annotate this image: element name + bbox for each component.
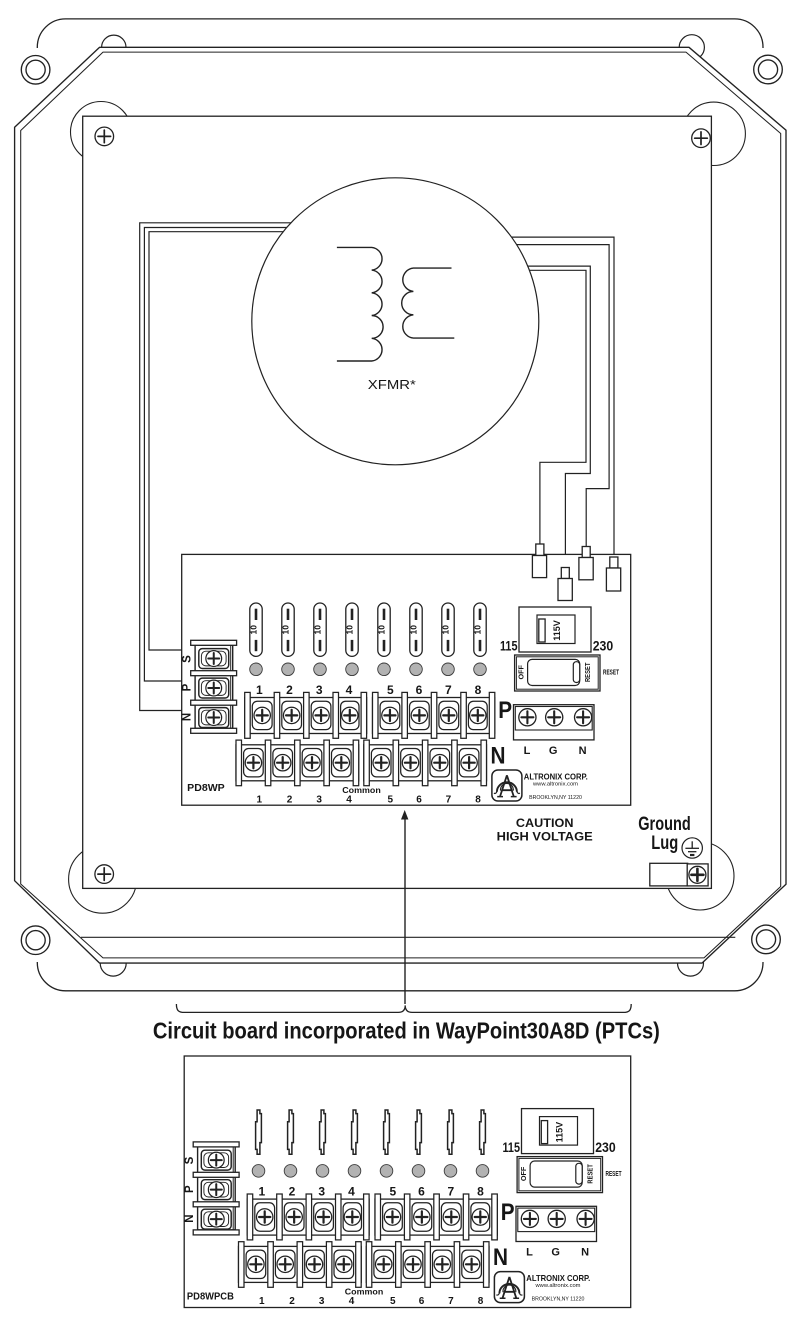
- svg-text:7: 7: [448, 1296, 454, 1307]
- svg-text:10: 10: [377, 625, 387, 635]
- svg-text:1: 1: [256, 683, 263, 697]
- svg-text:2: 2: [289, 1185, 296, 1199]
- svg-text:3: 3: [316, 795, 322, 806]
- svg-text:3: 3: [316, 683, 323, 697]
- svg-text:4: 4: [349, 1296, 355, 1307]
- svg-text:7: 7: [448, 1185, 455, 1199]
- svg-text:115: 115: [500, 639, 518, 654]
- svg-text:7: 7: [446, 795, 452, 806]
- svg-text:Lug: Lug: [651, 832, 678, 854]
- svg-text:N: N: [581, 1247, 589, 1259]
- svg-text:RESET: RESET: [606, 1171, 622, 1178]
- svg-text:115V: 115V: [552, 620, 562, 641]
- svg-text:5: 5: [390, 1296, 396, 1307]
- svg-text:www.altronix.com: www.altronix.com: [536, 1283, 581, 1289]
- svg-text:PD8WPCB: PD8WPCB: [187, 1290, 234, 1302]
- svg-text:HIGH VOLTAGE: HIGH VOLTAGE: [497, 831, 593, 844]
- svg-text:6: 6: [419, 1296, 425, 1307]
- svg-text:2: 2: [289, 1296, 295, 1307]
- svg-text:L: L: [526, 1247, 533, 1259]
- svg-text:OFF: OFF: [517, 665, 526, 680]
- svg-text:PD8WP: PD8WP: [187, 782, 225, 794]
- svg-text:7: 7: [445, 683, 452, 697]
- svg-text:RESET: RESET: [603, 669, 619, 676]
- svg-text:2: 2: [287, 795, 293, 806]
- svg-text:P: P: [184, 1185, 196, 1193]
- svg-text:10: 10: [473, 625, 483, 635]
- svg-text:Common: Common: [345, 1288, 384, 1297]
- svg-text:8: 8: [475, 795, 481, 806]
- svg-text:4: 4: [348, 1185, 355, 1199]
- svg-text:5: 5: [388, 795, 394, 806]
- svg-text:8: 8: [478, 1296, 484, 1307]
- svg-text:8: 8: [477, 1185, 484, 1199]
- svg-text:5: 5: [387, 683, 394, 697]
- svg-text:10: 10: [313, 625, 323, 635]
- svg-text:3: 3: [318, 1185, 325, 1199]
- svg-text:ALTRONIX CORP.: ALTRONIX CORP.: [526, 1274, 590, 1283]
- svg-text:10: 10: [345, 625, 355, 635]
- svg-text:230: 230: [593, 639, 614, 654]
- svg-text:Common: Common: [342, 786, 381, 795]
- svg-text:115: 115: [503, 1140, 521, 1155]
- svg-text:S: S: [184, 1156, 196, 1164]
- svg-text:G: G: [549, 745, 558, 757]
- svg-text:4: 4: [346, 683, 353, 697]
- svg-text:115V: 115V: [555, 1122, 565, 1143]
- svg-text:3: 3: [319, 1296, 325, 1307]
- svg-text:6: 6: [418, 1185, 425, 1199]
- svg-text:P: P: [498, 697, 512, 724]
- svg-text:230: 230: [595, 1140, 616, 1155]
- svg-text:Circuit board incorporated in: Circuit board incorporated in WayPoint30…: [153, 1018, 660, 1044]
- svg-text:N: N: [491, 743, 506, 770]
- svg-text:5: 5: [389, 1185, 396, 1199]
- svg-text:10: 10: [441, 625, 451, 635]
- svg-text:RESET: RESET: [585, 662, 592, 682]
- svg-text:BROOKLYN,NY 11220: BROOKLYN,NY 11220: [532, 1297, 585, 1303]
- svg-text:CAUTION: CAUTION: [516, 817, 574, 830]
- svg-text:OFF: OFF: [519, 1166, 528, 1181]
- svg-text:L: L: [524, 745, 531, 757]
- svg-text:XFMR*: XFMR*: [368, 377, 416, 392]
- svg-text:S: S: [181, 655, 193, 663]
- svg-text:ALTRONIX CORP.: ALTRONIX CORP.: [524, 773, 588, 782]
- svg-text:P: P: [181, 683, 193, 691]
- svg-text:4: 4: [346, 795, 352, 806]
- svg-text:1: 1: [257, 795, 263, 806]
- svg-text:10: 10: [281, 625, 291, 635]
- svg-text:P: P: [501, 1199, 515, 1226]
- svg-text:1: 1: [258, 1185, 265, 1199]
- svg-text:6: 6: [416, 683, 423, 697]
- svg-text:G: G: [551, 1247, 560, 1259]
- svg-text:10: 10: [409, 625, 419, 635]
- svg-text:BROOKLYN,NY 11220: BROOKLYN,NY 11220: [529, 795, 582, 801]
- svg-text:N: N: [579, 745, 587, 757]
- svg-text:N: N: [184, 1214, 196, 1222]
- svg-text:RESET: RESET: [587, 1164, 594, 1184]
- svg-text:1: 1: [259, 1296, 265, 1307]
- svg-text:N: N: [493, 1244, 508, 1271]
- svg-text:8: 8: [475, 683, 482, 697]
- svg-text:2: 2: [286, 683, 293, 697]
- svg-text:10: 10: [249, 625, 259, 635]
- svg-text:6: 6: [416, 795, 422, 806]
- svg-text:www.altronix.com: www.altronix.com: [533, 781, 578, 787]
- svg-text:N: N: [181, 713, 193, 721]
